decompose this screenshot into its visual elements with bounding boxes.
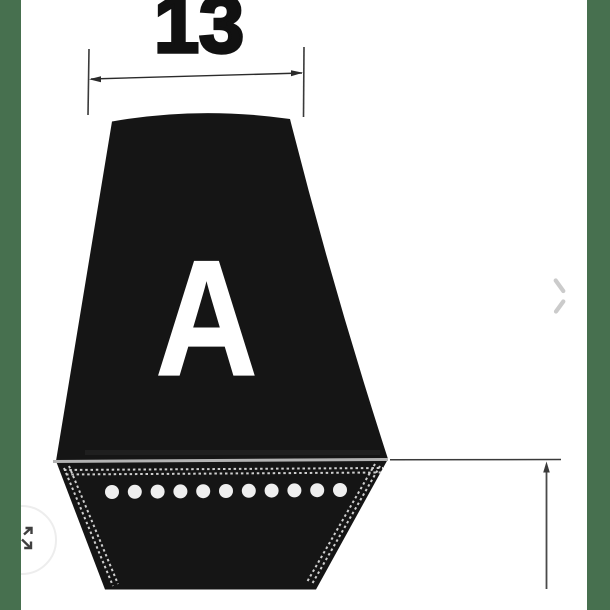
svg-text:13: 13 [154,0,244,70]
svg-text:A: A [155,226,257,410]
